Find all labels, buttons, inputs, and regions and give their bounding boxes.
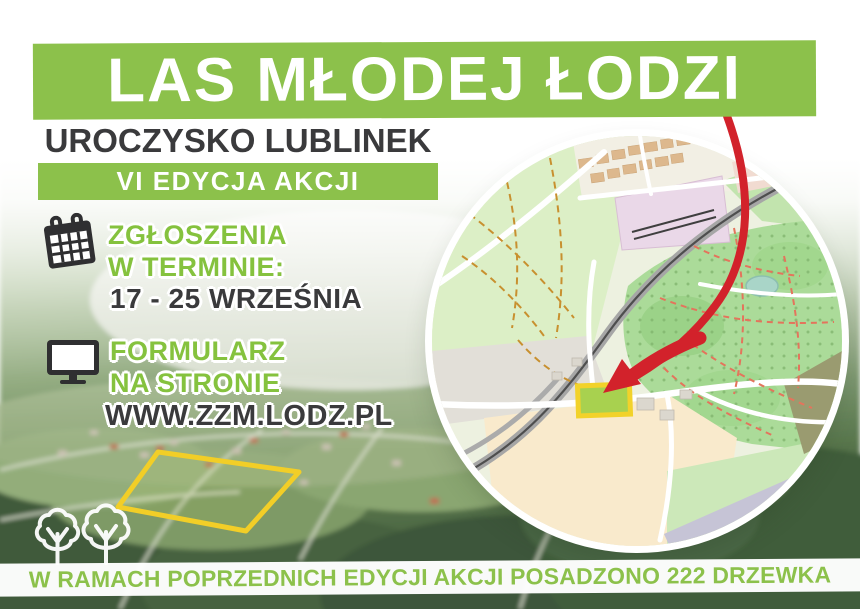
calendar-icon [38,210,102,275]
form-line2: NA STRONIE [110,367,285,399]
form-line1: FORMULARZ [110,335,285,367]
tree-icons [30,500,134,566]
registration-dates: 17 - 25 WRZEŚNIA [110,283,362,315]
street-map [432,136,842,546]
registration-line1: ZGŁOSZENIA [108,219,287,251]
edition-strip: VI EDYCJA AKCJI [38,163,438,200]
page-title: LAS MŁODEJ ŁODZI [107,48,742,113]
registration-heading: ZGŁOSZENIA W TERMINIE: [108,219,287,283]
footer-strip: W RAMACH POPRZEDNICH EDYCJI AKCJI POSADZ… [0,558,860,596]
planting-site-rectangle [577,384,630,416]
monitor-icon [44,336,102,388]
form-url: WWW.ZZM.LODZ.PL [105,399,393,433]
map-inset [432,136,842,546]
poster: LAS MŁODEJ ŁODZI UROCZYSKO LUBLINEK VI E… [0,0,860,609]
subtitle: UROCZYSKO LUBLINEK [38,121,438,161]
footer-text: W RAMACH POPRZEDNICH EDYCJI AKCJI POSADZ… [29,562,832,594]
registration-line2: W TERMINIE: [108,251,287,283]
edition-label: VI EDYCJA AKCJI [116,166,359,197]
title-banner: LAS MŁODEJ ŁODZI [33,40,816,119]
form-heading: FORMULARZ NA STRONIE [110,335,285,399]
